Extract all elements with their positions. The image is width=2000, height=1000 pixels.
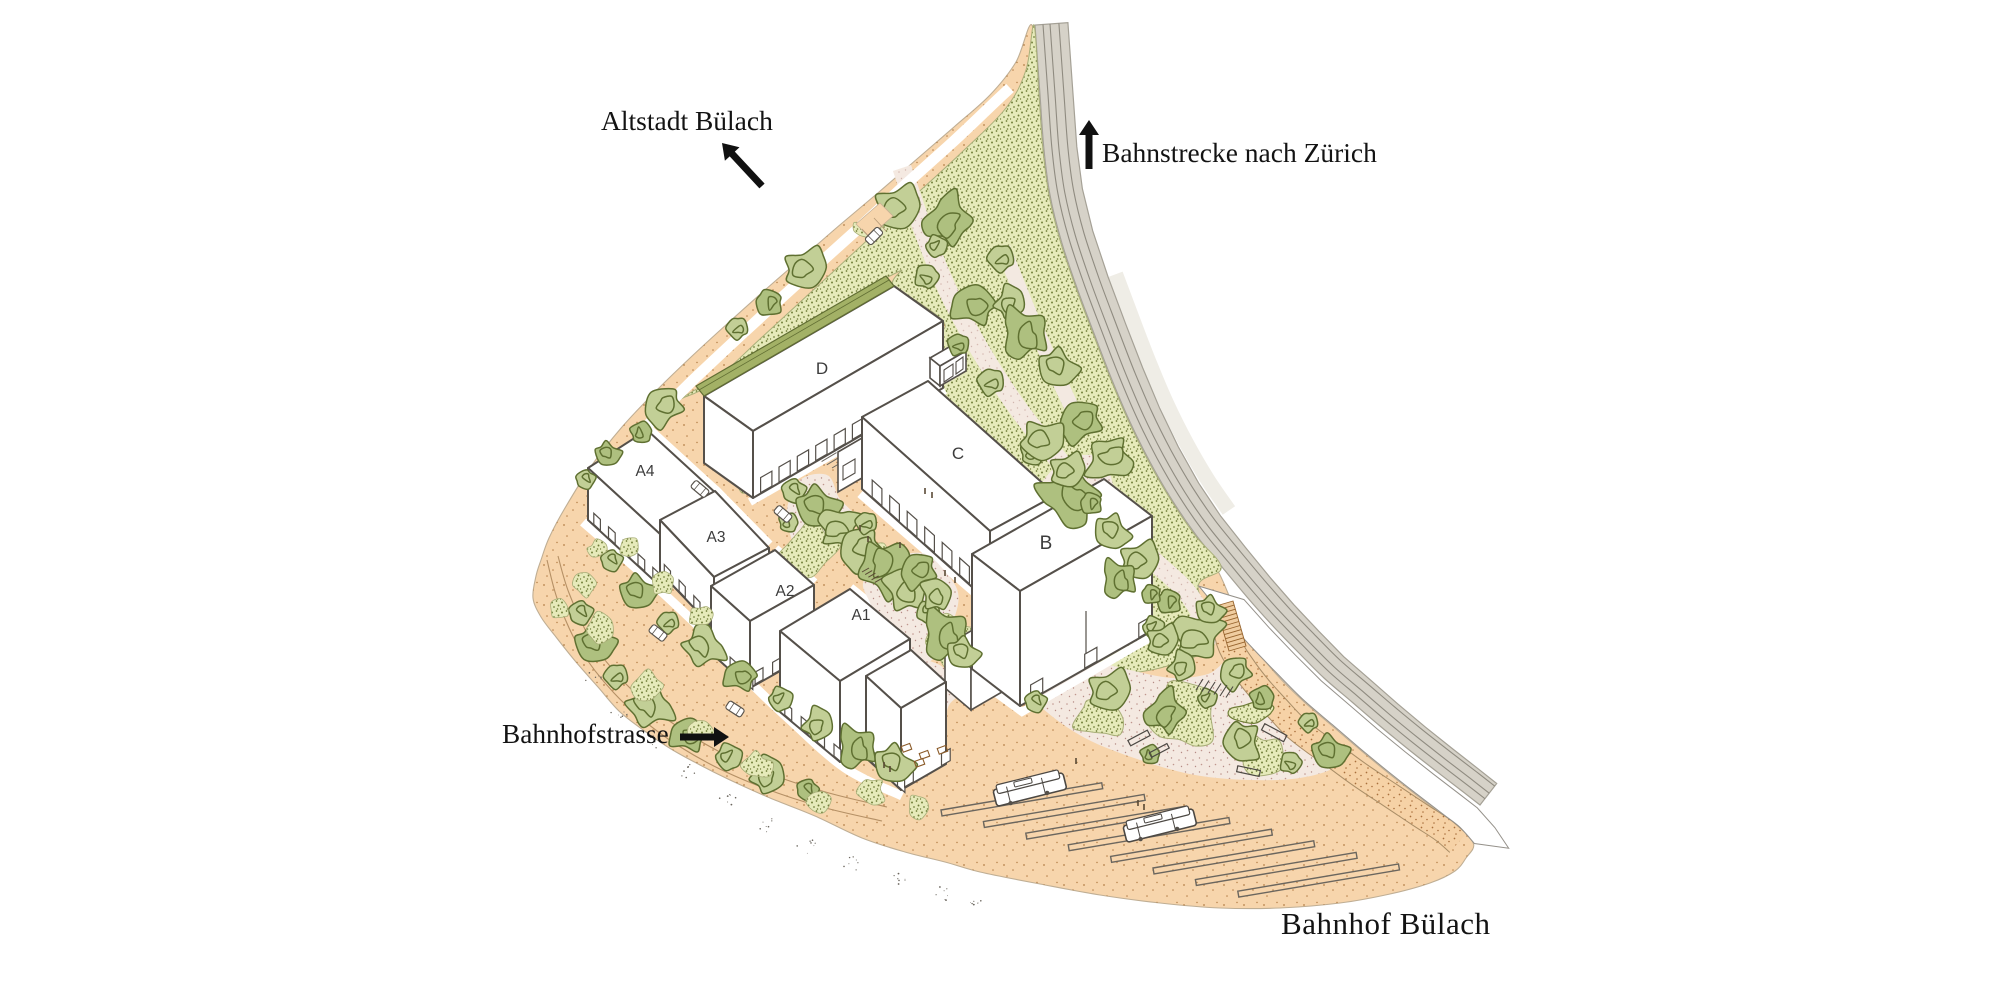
svg-text:A1: A1	[852, 607, 871, 624]
svg-text:B: B	[1040, 533, 1053, 554]
svg-text:A4: A4	[636, 463, 655, 480]
svg-text:D: D	[816, 359, 828, 378]
svg-text:C: C	[952, 444, 964, 463]
svg-text:A2: A2	[776, 583, 795, 600]
svg-text:A3: A3	[707, 529, 726, 546]
svg-text:Bahnhofstrasse: Bahnhofstrasse	[502, 719, 669, 749]
svg-text:Altstadt Bülach: Altstadt Bülach	[601, 105, 773, 136]
svg-text:Bahnstrecke nach Zürich: Bahnstrecke nach Zürich	[1102, 137, 1377, 168]
svg-text:Bahnhof Bülach: Bahnhof Bülach	[1281, 906, 1491, 941]
